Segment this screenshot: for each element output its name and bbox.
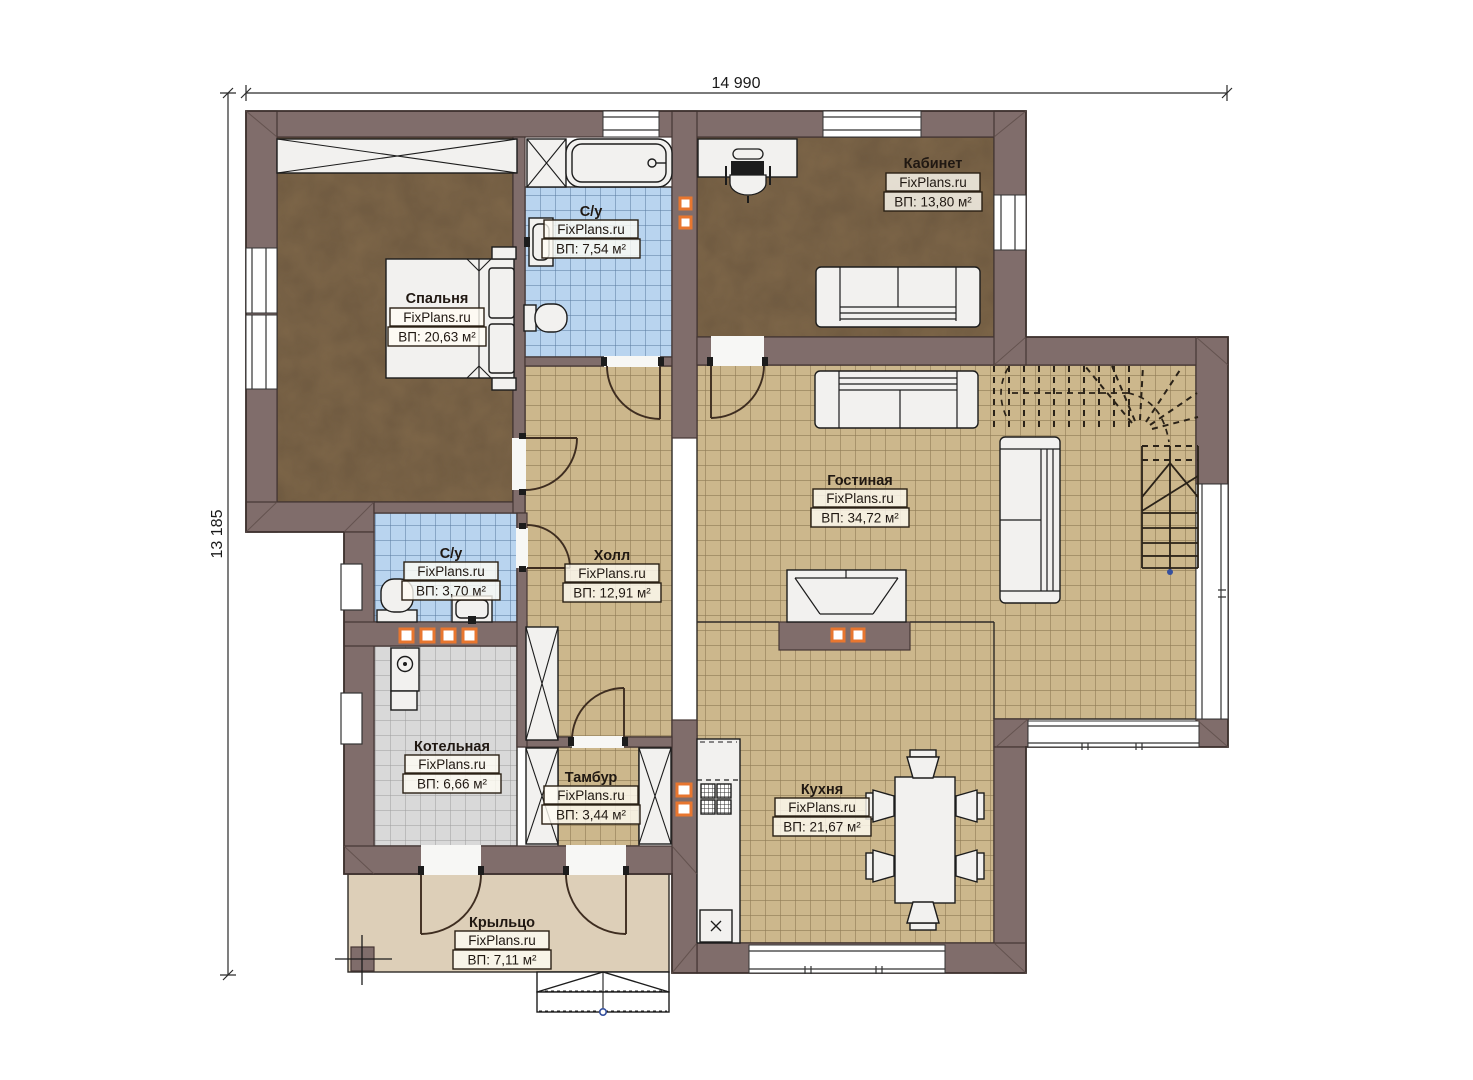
svg-text:ВП: 7,11 м²: ВП: 7,11 м²: [467, 953, 537, 968]
svg-text:FixPlans.ru: FixPlans.ru: [417, 564, 485, 579]
svg-text:Котельная: Котельная: [414, 739, 490, 755]
svg-text:С/у: С/у: [580, 204, 603, 220]
svg-text:ВП: 21,67 м²: ВП: 21,67 м²: [783, 820, 861, 835]
svg-text:ВП: 7,54 м²: ВП: 7,54 м²: [556, 242, 627, 257]
svg-text:ВП: 12,91 м²: ВП: 12,91 м²: [573, 586, 651, 601]
svg-text:Спальня: Спальня: [406, 291, 469, 307]
svg-text:Гостиная: Гостиная: [827, 473, 893, 489]
svg-text:ВП: 13,80 м²: ВП: 13,80 м²: [894, 195, 972, 210]
svg-text:Крыльцо: Крыльцо: [469, 915, 535, 931]
svg-text:13 185: 13 185: [209, 509, 226, 558]
svg-text:ВП: 6,66 м²: ВП: 6,66 м²: [417, 777, 488, 792]
svg-text:FixPlans.ru: FixPlans.ru: [788, 800, 856, 815]
svg-text:FixPlans.ru: FixPlans.ru: [578, 566, 646, 581]
svg-text:ВП: 34,72 м²: ВП: 34,72 м²: [821, 511, 899, 526]
svg-text:ВП: 3,44 м²: ВП: 3,44 м²: [556, 808, 627, 823]
svg-text:FixPlans.ru: FixPlans.ru: [418, 757, 486, 772]
svg-text:ВП: 20,63 м²: ВП: 20,63 м²: [398, 330, 476, 345]
svg-text:С/у: С/у: [440, 546, 463, 562]
svg-text:14 990: 14 990: [712, 75, 761, 92]
svg-text:FixPlans.ru: FixPlans.ru: [403, 310, 471, 325]
svg-text:FixPlans.ru: FixPlans.ru: [557, 222, 625, 237]
svg-text:FixPlans.ru: FixPlans.ru: [557, 788, 625, 803]
svg-text:FixPlans.ru: FixPlans.ru: [899, 175, 967, 190]
svg-text:ВП: 3,70 м²: ВП: 3,70 м²: [416, 584, 487, 599]
svg-text:Кабинет: Кабинет: [904, 156, 963, 172]
svg-text:FixPlans.ru: FixPlans.ru: [468, 933, 536, 948]
svg-text:FixPlans.ru: FixPlans.ru: [826, 491, 894, 506]
svg-text:Тамбур: Тамбур: [565, 770, 618, 786]
svg-text:Холл: Холл: [594, 548, 630, 564]
svg-text:Кухня: Кухня: [801, 782, 843, 798]
